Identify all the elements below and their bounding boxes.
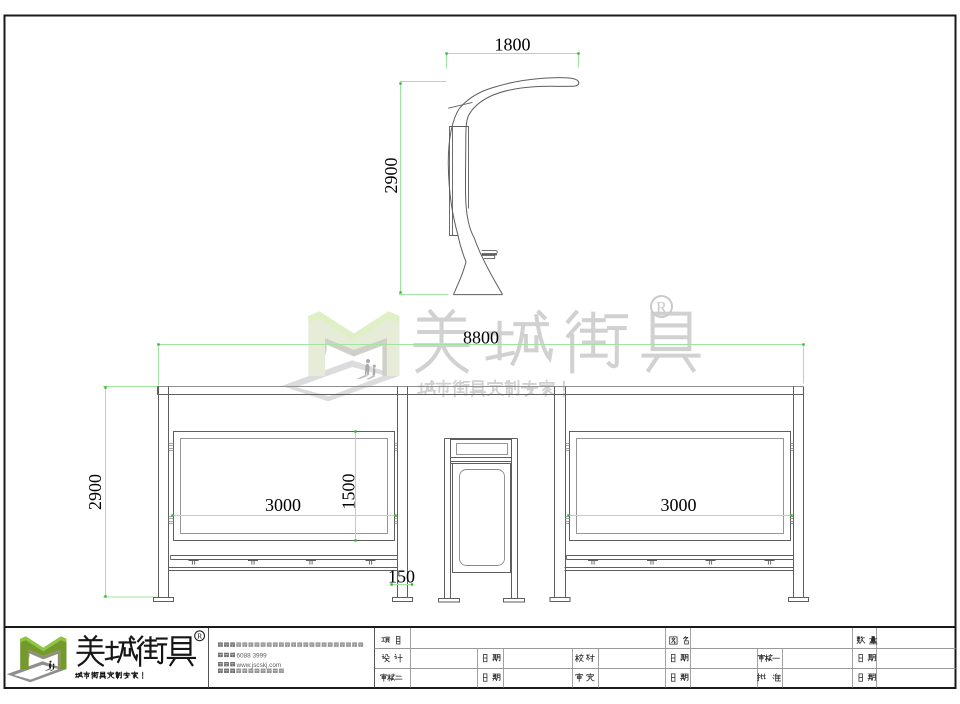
svg-text:6088 3999: 6088 3999 [237,653,268,660]
svg-text:R: R [656,300,667,317]
svg-text:1800: 1800 [495,35,531,55]
svg-text:2900: 2900 [381,158,401,194]
svg-text:2900: 2900 [85,474,105,510]
svg-text:R: R [197,632,202,641]
svg-text:www.jscskj.com: www.jscskj.com [236,662,282,669]
svg-text:3000: 3000 [265,495,301,515]
svg-text:3000: 3000 [661,495,697,515]
